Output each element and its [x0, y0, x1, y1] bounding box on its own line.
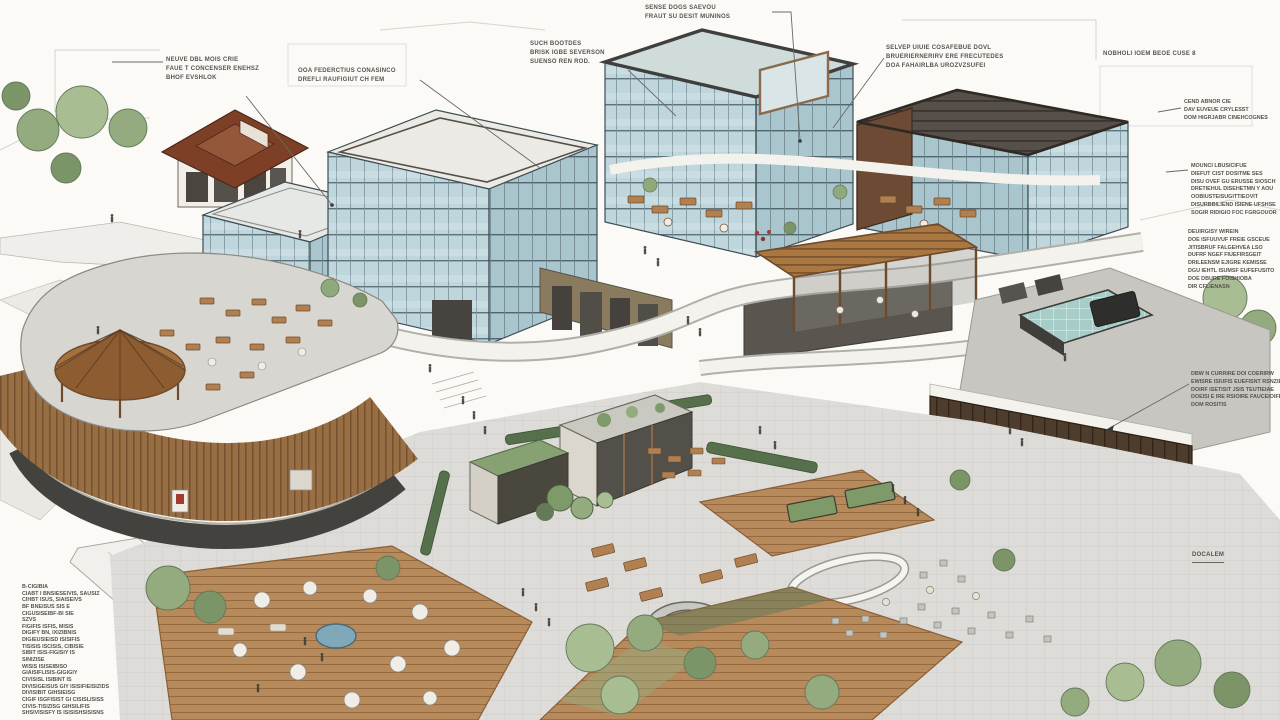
annotation-tower-right: SELVEP UIUIE COSAFEBUE DOVLBRUERIERNERIR…: [886, 44, 1004, 71]
boardwalk: [540, 587, 962, 720]
annotation-tower-mid: SUCH BOOTDESBRISK IGBE SEVERSONSUENSO RE…: [530, 40, 605, 67]
annotation-loading-dock: DBW N CURRIRE DOI COERIRWEWISRE ISIUFIS …: [1191, 371, 1280, 410]
plaza-kiosks: [420, 394, 818, 556]
terrace-bands: [330, 159, 1152, 368]
site-sketch-lines: [0, 20, 1280, 220]
tower-center-left: [328, 110, 597, 346]
annotation-podium: OOA FEDERCTIUS CONASINCODREFLI RAUFIGIUT…: [298, 67, 396, 85]
annotation-right-c: DEUIRGISY WIREINDOE ISFUUVUF FREIE GSCEU…: [1188, 229, 1274, 292]
annotation-site-right: NOBHOLI IOEM BEOE CUSE 8: [1103, 50, 1196, 59]
fountain: [646, 547, 909, 654]
annotation-legend: B-CIGIBIACIABT I BNSIESEIVIS, SAUSIZCIHB…: [22, 584, 109, 717]
cafe-chairs: [832, 560, 1051, 642]
tower-left: [203, 182, 392, 357]
scene-illustration: [0, 0, 1280, 720]
annotation-top-center: SENSE DOGS SAEVOUFRAUT SU DESIT MUNINOS: [645, 4, 730, 22]
people: [97, 214, 1067, 692]
plaza: [110, 372, 1280, 720]
dark-wood-building: [930, 384, 1192, 502]
wood-deck-left: [152, 546, 532, 720]
tower-right-block: [857, 90, 1128, 260]
leader-lines: [0, 0, 1280, 720]
trees-back: [2, 82, 1276, 346]
annotation-scale-note: DOCALEM: [1192, 551, 1224, 563]
wood-podium-building: [16, 253, 398, 537]
annotation-right-b: MOUNCI LBUSICIFUEDIEFUT CIST DOSITME SES…: [1191, 163, 1277, 218]
stage-decks: [585, 470, 934, 602]
pergola-terrace: [756, 224, 976, 332]
service-deck: [958, 268, 1270, 472]
terrace-furniture-mid: [628, 178, 976, 241]
tower-center: [605, 30, 853, 257]
gazebo: [55, 330, 185, 418]
annotation-top-left: NEUVE DBL MOIS CRIEFAUE T CONCENSER ENEH…: [166, 56, 259, 83]
pavilion-building: [162, 110, 308, 207]
architectural-rendering: SENSE DOGS SAEVOUFRAUT SU DESIT MUNINOS …: [0, 0, 1280, 720]
trees-front: [146, 470, 1250, 716]
annotation-right-a: CEND ABNOR CIEDAV EUVEUE CRYLESSTDOM HIG…: [1184, 99, 1268, 122]
